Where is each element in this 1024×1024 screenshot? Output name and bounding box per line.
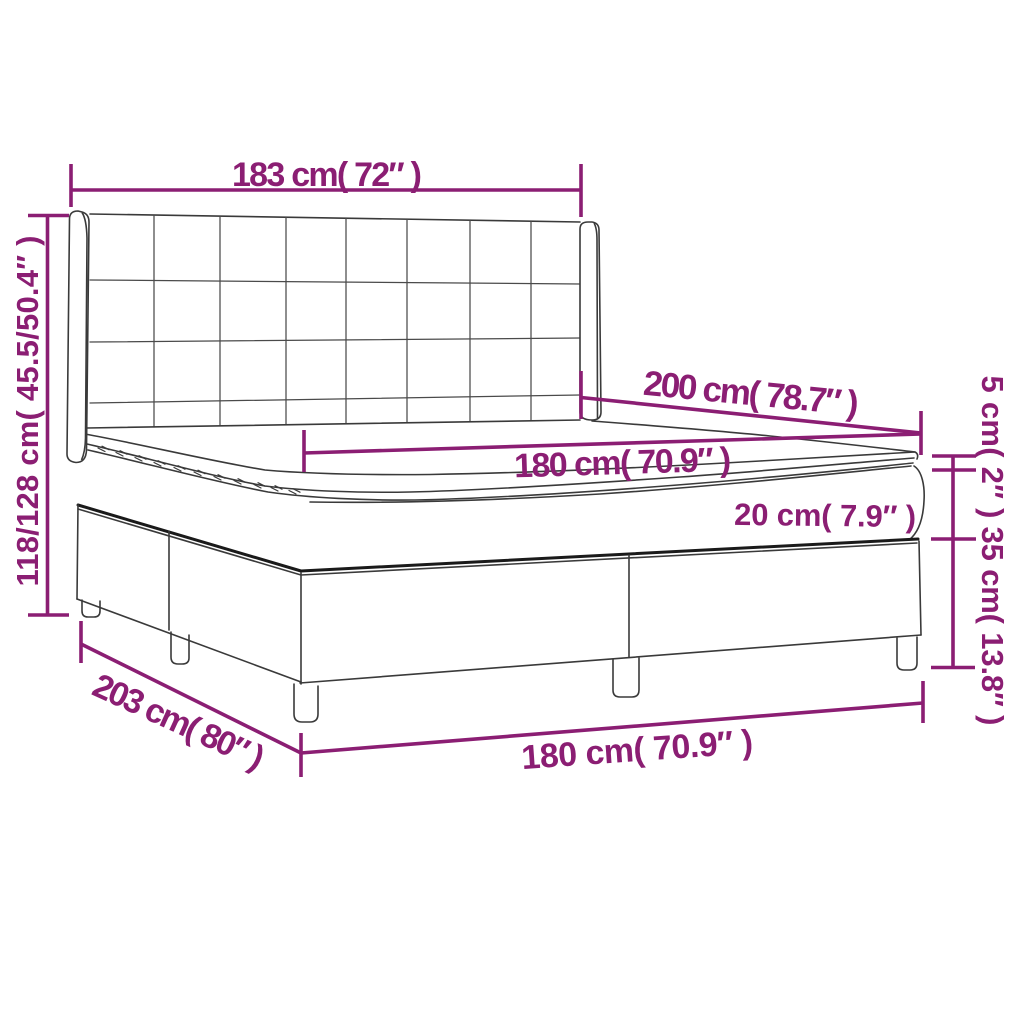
svg-text:5 cm( 2″ ): 5 cm( 2″ ) xyxy=(975,376,1010,519)
svg-text:180 cm( 70.9″ ): 180 cm( 70.9″ ) xyxy=(514,441,732,486)
svg-text:35 cm( 13.8″ ): 35 cm( 13.8″ ) xyxy=(975,527,1010,726)
svg-text:183 cm( 72″ ): 183 cm( 72″ ) xyxy=(232,156,422,194)
svg-text:20 cm( 7.9″ ): 20 cm( 7.9″ ) xyxy=(734,497,916,534)
svg-text:118/128 cm( 45.5/50.4″ ): 118/128 cm( 45.5/50.4″ ) xyxy=(10,236,45,587)
